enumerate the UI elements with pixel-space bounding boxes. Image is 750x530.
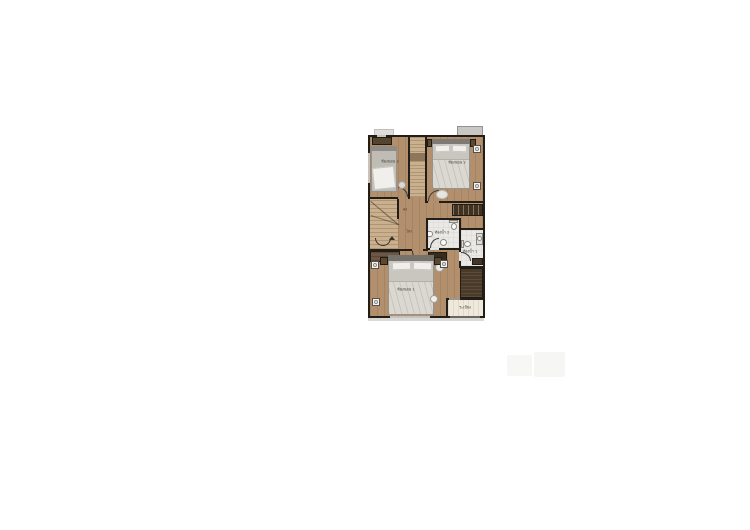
bedroom3-desk <box>372 137 392 145</box>
fixture-circle <box>475 147 479 151</box>
wall-bedroom3-right <box>408 135 410 199</box>
bedroom1-wall-fixture-right <box>440 260 448 268</box>
fixture-circle <box>475 184 479 188</box>
fixture-circle <box>374 300 378 304</box>
canvas: ห้องนอน 3 ห้องนอน 2 ลง โถง ห้องน้ำ 2 ห้อ… <box>0 0 750 530</box>
bedroom1-pillow-left <box>392 262 411 271</box>
stairs-upper-landing <box>410 153 425 161</box>
bath1-toilet-bowl <box>464 241 471 247</box>
bath2-pedestal-sink <box>440 239 447 246</box>
bedroom1-nightstand-left <box>380 257 388 265</box>
door-gap-bedroom2 <box>428 201 439 203</box>
bath1-label: ห้องน้ำ 1 <box>463 250 478 254</box>
watermark-blob <box>534 352 565 377</box>
stair-rail-stub <box>397 199 399 219</box>
bedroom1-stool <box>430 295 438 303</box>
wall-bath1-top <box>459 228 485 230</box>
door-gap-bedroom3 <box>398 197 408 199</box>
bedroom2-label: ห้องนอน 2 <box>448 161 465 165</box>
bedroom3-headboard <box>371 146 397 151</box>
stair-arrow-head <box>389 236 395 240</box>
bedroom2-pillow-left <box>435 145 450 153</box>
bedroom1-label: ห้องนอน 1 <box>397 288 414 292</box>
bedroom3-label: ห้องนอน 3 <box>381 160 398 164</box>
bedroom2-headboard <box>432 139 470 144</box>
bedroom2-rug <box>436 190 448 199</box>
stairs-down-label: ลง <box>403 208 407 212</box>
bath2-label: ห้องน้ำ 2 <box>435 231 450 235</box>
window-left <box>368 153 370 183</box>
plan-bottom-shadow <box>368 318 484 321</box>
bedroom1-pillow-right <box>413 262 432 271</box>
balcony-railing <box>450 316 480 318</box>
wall-balcony-left <box>446 298 448 318</box>
bath2-sink <box>428 231 433 237</box>
balcony-sliding-door <box>449 298 460 300</box>
bedroom1-blanket <box>389 281 433 314</box>
bedroom1-wall-fixture-bottom-left <box>372 298 380 306</box>
bedroom2-wall-fixture-bottom <box>473 182 481 190</box>
hall-label: โถง <box>406 230 412 234</box>
wall-right <box>483 135 485 318</box>
bedroom1-wardrobe <box>460 268 483 298</box>
bedroom2-pillow-right <box>452 145 467 153</box>
bedroom3-duvet <box>372 166 396 190</box>
bedroom3-stool <box>398 181 406 189</box>
balcony-label: ระเบียง <box>459 306 471 310</box>
fixture-circle <box>442 262 446 266</box>
door-gap-bath2 <box>430 248 439 250</box>
fixture-circle <box>373 263 377 267</box>
stairs-upper-flight <box>410 137 425 197</box>
floor-plan: ห้องนอน 3 ห้องนอน 2 ลง โถง ห้องน้ำ 2 ห้อ… <box>368 135 485 318</box>
bedroom2-wall-fixture-top <box>473 145 481 153</box>
bedroom1-headboard <box>388 255 434 261</box>
bath1-cabinet <box>472 258 483 265</box>
watermark-blob <box>507 355 532 376</box>
bath1-vanity-sink <box>477 236 482 241</box>
watermark <box>507 352 565 378</box>
bath2-toilet-bowl <box>451 223 457 230</box>
window-bottom <box>390 316 430 318</box>
bedroom1-wall-fixture-left <box>371 261 379 269</box>
vanity-counter <box>452 204 483 216</box>
